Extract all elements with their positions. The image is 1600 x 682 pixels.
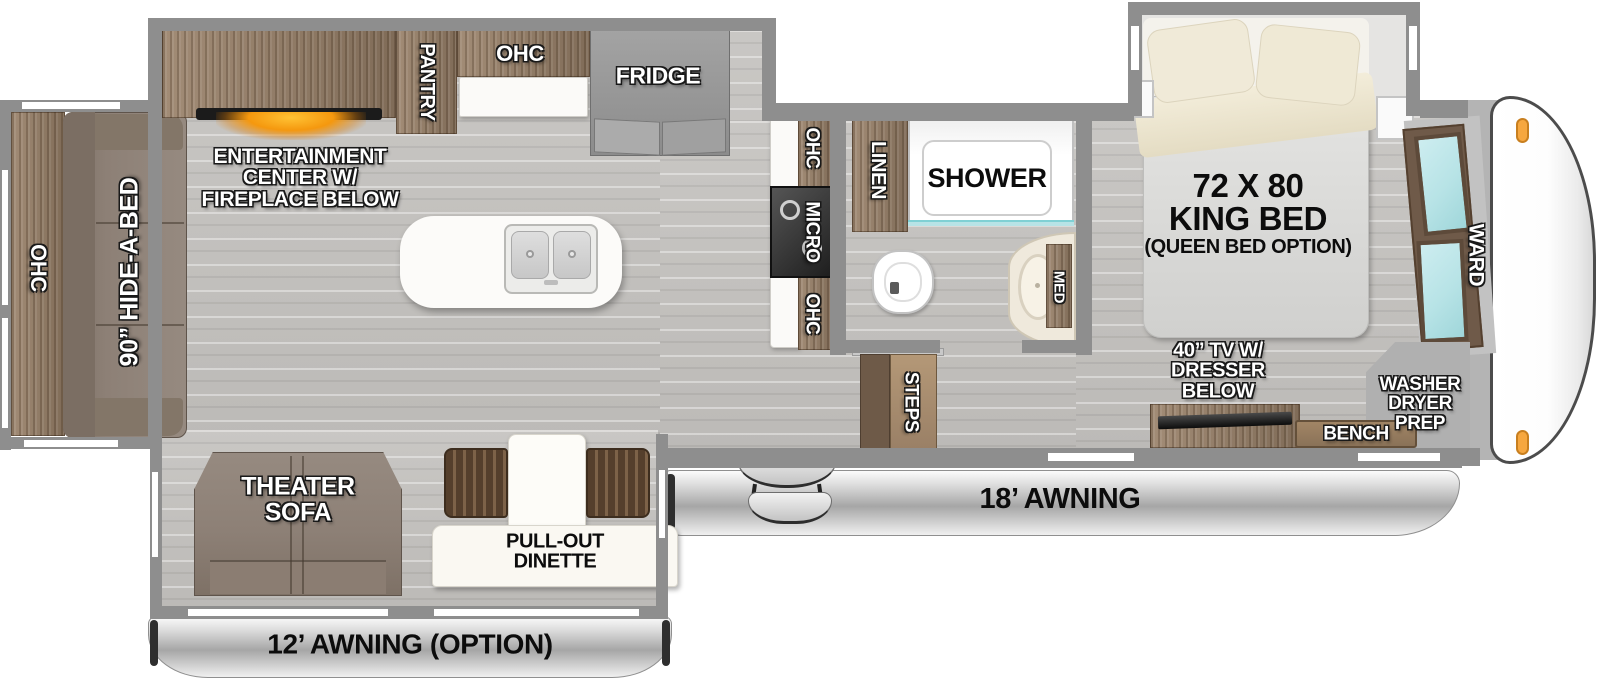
window-strip: [1358, 453, 1440, 461]
hide-a-bed-arm-top: [95, 114, 183, 150]
label-kitchen-ohc: OHC: [496, 43, 544, 65]
rv-floorplan: OHC 90” HIDE-A-BED ENTERTAINMENT CENTER …: [0, 0, 1600, 682]
window-strip: [152, 472, 158, 557]
dinette-chair-left: [444, 448, 508, 518]
awning-12ft-tip-left: [150, 620, 158, 666]
marker-light-top: [1516, 118, 1529, 143]
label-linen: LINEN: [868, 141, 888, 199]
window-strip: [2, 170, 8, 305]
wall-bed-slideout-top: [1128, 2, 1420, 15]
label-counter-micro: MICRO: [802, 201, 821, 262]
label-shower: SHOWER: [927, 165, 1046, 193]
label-awning-12: 12’ AWNING (OPTION): [267, 631, 552, 660]
hide-a-bed-arm-bottom: [95, 398, 183, 436]
wall-front-bottom-connector: [1446, 448, 1480, 466]
label-bed-type: KING BED: [1169, 202, 1327, 236]
window-strip: [2, 318, 8, 428]
bed-pillow-left: [1145, 17, 1256, 104]
label-hide-a-bed: 90” HIDE-A-BED: [117, 178, 143, 367]
theater-sofa-front: [210, 560, 386, 594]
hide-a-bed-back: [63, 112, 95, 438]
window-strip: [1409, 26, 1417, 70]
label-pantry: PANTRY: [417, 43, 437, 121]
toilet-flush: [890, 282, 899, 294]
sink-drain-left: [526, 250, 534, 258]
burner: [780, 200, 800, 220]
label-steps: STEPS: [901, 372, 920, 432]
label-theater-sofa: THEATER SOFA: [241, 475, 354, 526]
fireplace-glow: [216, 112, 366, 140]
window-strip: [434, 609, 639, 616]
label-fridge: FRIDGE: [616, 64, 701, 87]
label-entertainment: ENTERTAINMENT CENTER W/ FIREPLACE BELOW: [202, 146, 399, 210]
label-tv-dresser: 40” TV W/ DRESSER BELOW: [1171, 340, 1265, 401]
label-counter-ohc-top: OHC: [802, 127, 821, 168]
window-strip: [188, 609, 388, 616]
label-awning-18: 18’ AWNING: [980, 485, 1141, 515]
sink-drain-right: [568, 250, 576, 258]
label-washer-dryer: WASHER DRYER PREP: [1380, 375, 1461, 433]
label-med: MED: [1051, 271, 1066, 303]
dinette-chair-right: [586, 448, 650, 518]
label-bed-option: (QUEEN BED OPTION): [1144, 237, 1351, 257]
dinette-leaf: [508, 434, 586, 534]
wall-front-top-connector: [1420, 100, 1468, 118]
label-ward: WARD: [1465, 224, 1486, 287]
wall-bath-right: [1076, 103, 1092, 355]
window-strip: [659, 470, 665, 538]
label-bed-size: 72 X 80: [1193, 169, 1304, 203]
wall-bath-bottom-left: [830, 340, 940, 353]
label-counter-ohc-bot: OHC: [802, 293, 821, 334]
fridge-door-right: [662, 118, 726, 155]
wall-bath-left: [830, 103, 846, 355]
wall-left-main: [148, 18, 162, 442]
marker-light-bottom: [1516, 430, 1529, 455]
sink-faucet: [544, 280, 558, 285]
kitchen-counter: [459, 77, 588, 117]
window-strip: [1048, 453, 1134, 461]
window-strip: [22, 102, 120, 109]
window-strip: [24, 440, 118, 447]
fridge-door-left: [594, 118, 660, 155]
wall-top-slideout-top: [148, 18, 776, 31]
label-rear-ohc: OHC: [27, 244, 49, 292]
wardrobe-mirror-bottom: [1416, 239, 1468, 343]
steps-box-dark: [860, 354, 890, 450]
label-dinette: PULL-OUT DINETTE: [506, 532, 604, 573]
window-strip: [1131, 26, 1139, 70]
shower-glass: [908, 220, 1074, 226]
front-cap: [1490, 96, 1596, 464]
awning-12ft-tip-right: [662, 620, 670, 666]
entertainment-center-cabinet: [162, 30, 396, 118]
bath-sink-drain: [1035, 283, 1040, 288]
bed-pillow-right: [1254, 23, 1361, 107]
